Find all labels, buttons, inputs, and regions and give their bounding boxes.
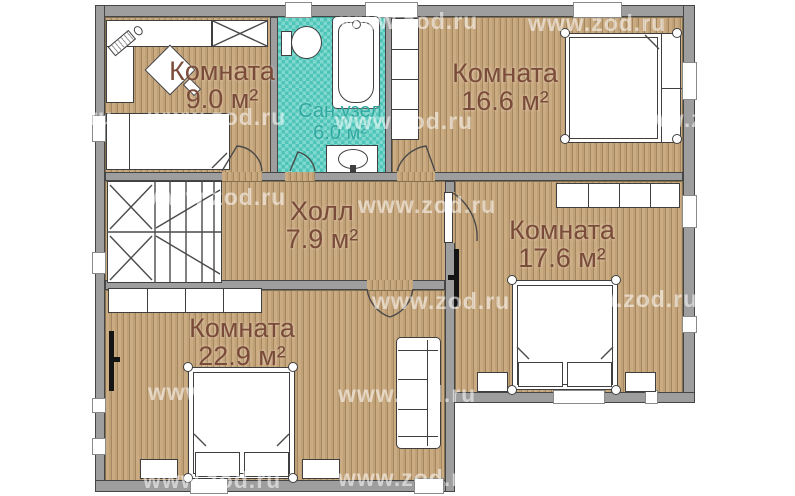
window-icon: [645, 390, 658, 404]
room-name: Комната: [415, 60, 595, 88]
watermark: www.zod.ru: [372, 288, 510, 315]
watermark: www.zod.ru: [143, 467, 281, 494]
watermark: www.zod.ru: [0, 104, 113, 131]
wall-inner-h1: [105, 172, 683, 181]
nightstand-icon: [302, 459, 340, 479]
tv-icon: [113, 357, 120, 362]
window-icon: [92, 398, 106, 413]
door-gap-room-16: [397, 172, 435, 181]
watermark: www.zod.ru: [628, 106, 766, 133]
room-area: 17.6 м²: [472, 245, 652, 273]
bed-post: [611, 275, 621, 285]
room-label-16: Комната 16.6 м²: [415, 60, 595, 115]
pillow: [518, 362, 563, 387]
wardrobe-icon: [212, 20, 268, 47]
room-label-22: Комната 22.9 м²: [152, 315, 332, 370]
watermark: www.zod.ru: [338, 465, 476, 492]
watermark: www.zod.ru: [560, 286, 698, 313]
door-gap-room-9: [222, 172, 262, 181]
bed-post: [288, 473, 298, 483]
watermark: www.zod.ru: [148, 104, 286, 131]
window-icon: [682, 195, 697, 228]
watermark: www.zod.ru: [148, 379, 286, 406]
floor-plan: Комната 9.0 м² Сан.узел 6.0 м² Комната 1…: [0, 0, 795, 496]
pillow: [567, 362, 612, 387]
tv-icon: [448, 275, 455, 280]
watermark: www.zod.ru: [340, 8, 478, 35]
room-name: Комната: [472, 217, 652, 245]
room-name: Комната: [132, 58, 312, 86]
window-icon: [92, 438, 106, 455]
shelf-icon: [556, 183, 680, 208]
room-area: 7.9 м²: [262, 226, 382, 254]
watermark: www.zod.ru: [338, 381, 476, 408]
watermark: www.zod.ru: [716, 10, 795, 37]
room-label-17: Комната 17.6 м²: [472, 217, 652, 272]
wall-left: [95, 5, 105, 492]
sink-icon: [326, 145, 378, 173]
window-icon: [285, 2, 312, 18]
watermark: www.zod.ru: [358, 192, 496, 219]
bed-post: [672, 134, 682, 144]
toilet-icon: [291, 26, 322, 59]
bed-post: [507, 275, 517, 285]
window-icon: [553, 390, 605, 404]
watermark: www.zod.ru: [528, 10, 666, 37]
room-area: 22.9 м²: [152, 343, 332, 371]
window-icon: [682, 316, 697, 333]
door-gap-bathroom: [285, 172, 315, 181]
watermark: www.zod.ru: [148, 184, 286, 211]
shelf-icon: [108, 288, 262, 313]
nightstand-icon: [625, 372, 656, 392]
bed-post: [672, 28, 682, 38]
bed-post: [507, 385, 517, 395]
bed-post: [560, 134, 570, 144]
bed-post: [611, 385, 621, 395]
window-icon: [92, 252, 106, 274]
room-name: Комната: [152, 315, 332, 343]
window-icon: [682, 62, 697, 100]
watermark: www.zod.ru: [335, 108, 473, 135]
nightstand-icon: [477, 372, 508, 392]
